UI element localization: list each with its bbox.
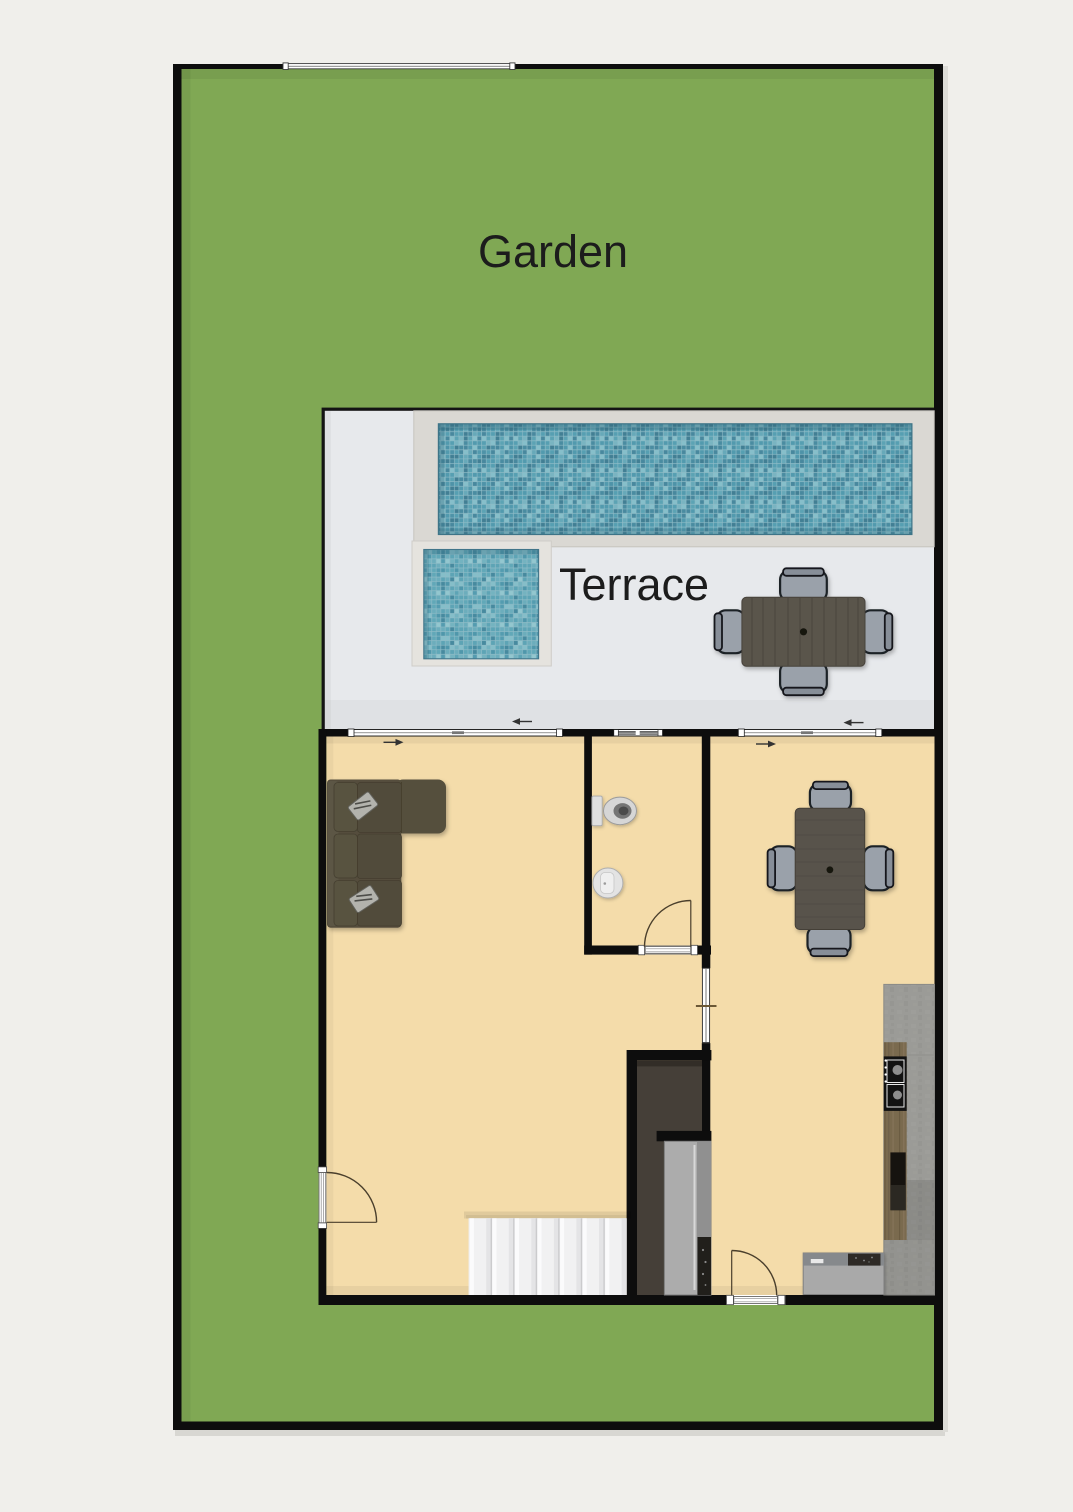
svg-text:Garden: Garden [478, 226, 628, 277]
svg-text:Terrace: Terrace [559, 559, 709, 610]
